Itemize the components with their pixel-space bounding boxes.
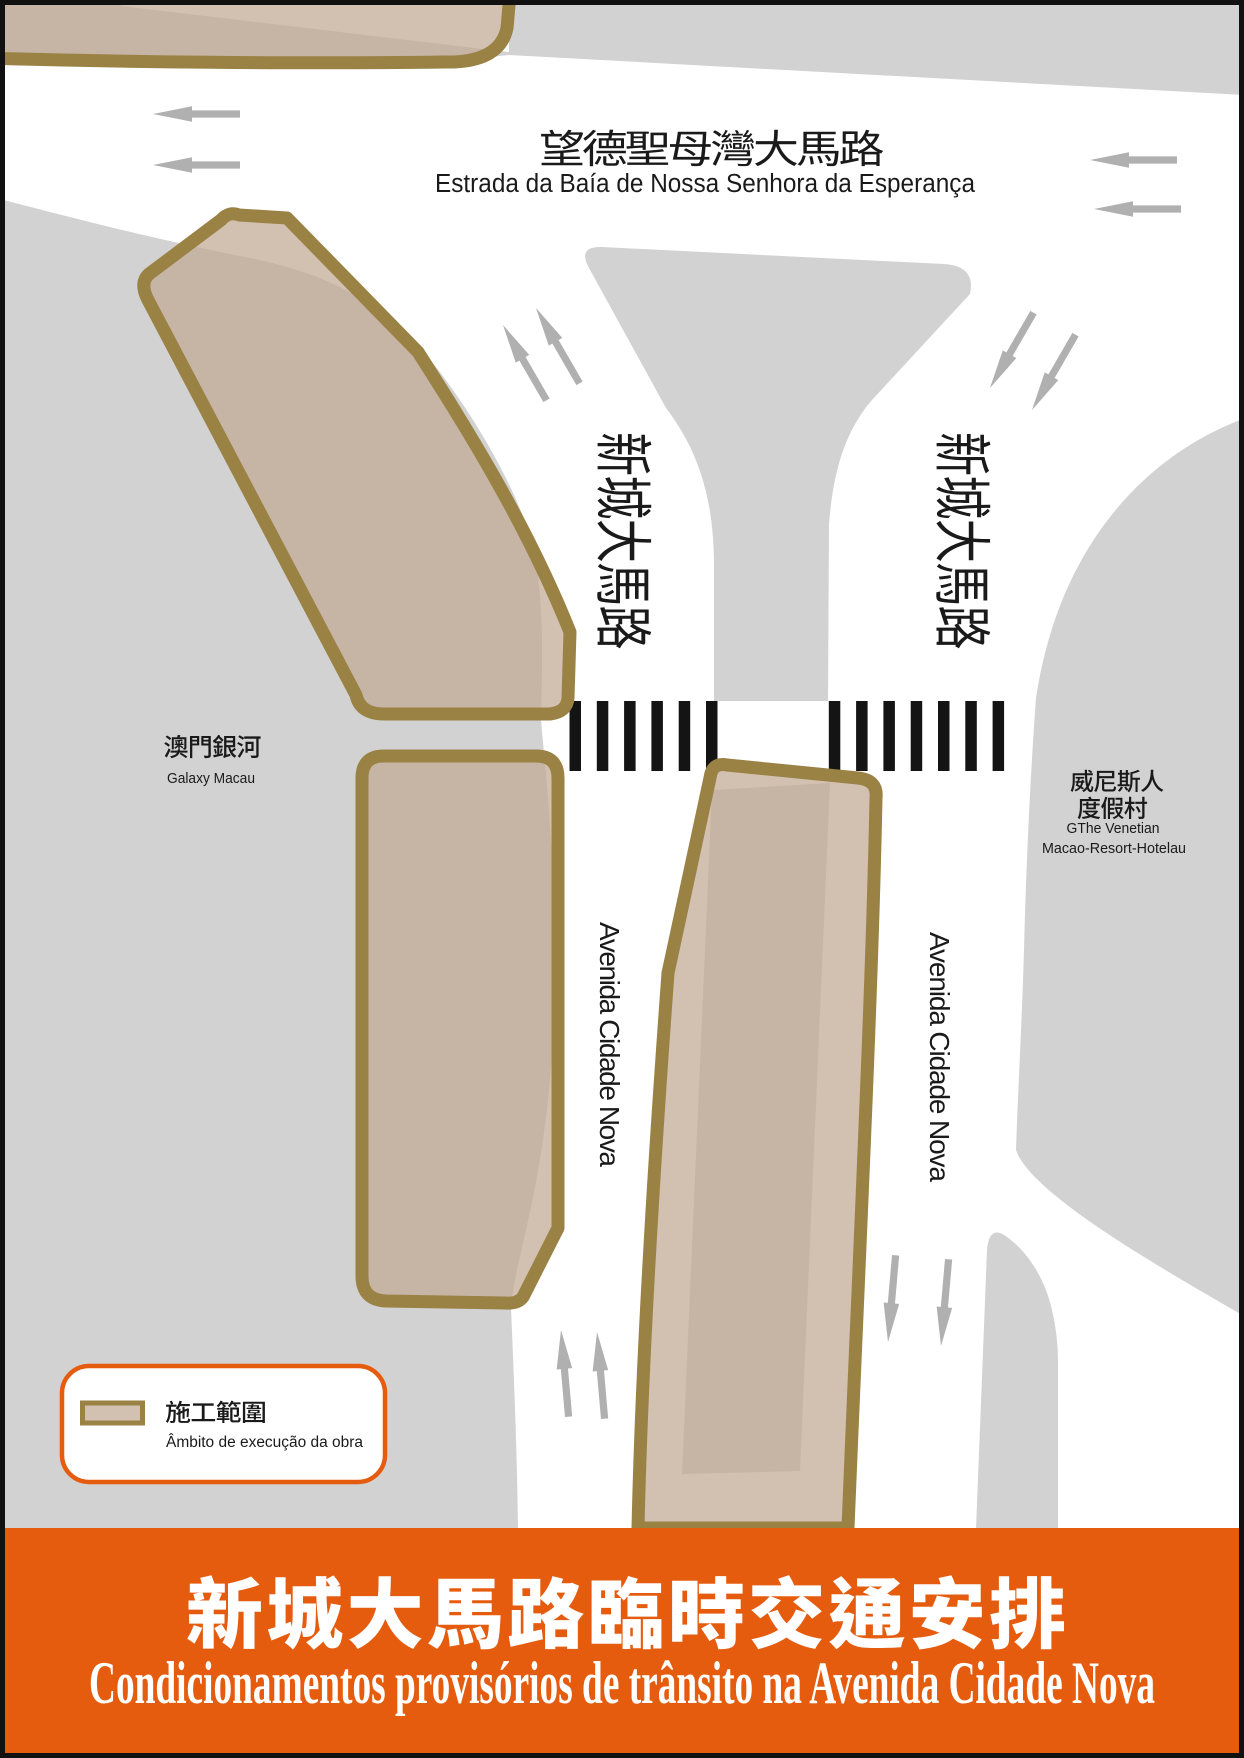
svg-text:Âmbito de execução da obra: Âmbito de execução da obra (166, 1434, 363, 1451)
svg-text:Galaxy Macau: Galaxy Macau (167, 770, 255, 787)
svg-text:Estrada da Baía de Nossa Senho: Estrada da Baía de Nossa Senhora da Espe… (435, 170, 976, 198)
svg-text:Avenida Cidade Nova: Avenida Cidade Nova (924, 932, 955, 1182)
svg-text:Avenida Cidade Nova: Avenida Cidade Nova (594, 922, 625, 1167)
svg-text:Macao-Resort-Hotelau: Macao-Resort-Hotelau (1042, 840, 1186, 857)
svg-text:GThe Venetian: GThe Venetian (1067, 820, 1160, 837)
svg-text:Condicionamentos provisórios d: Condicionamentos provisórios de trânsito… (89, 1650, 1155, 1716)
